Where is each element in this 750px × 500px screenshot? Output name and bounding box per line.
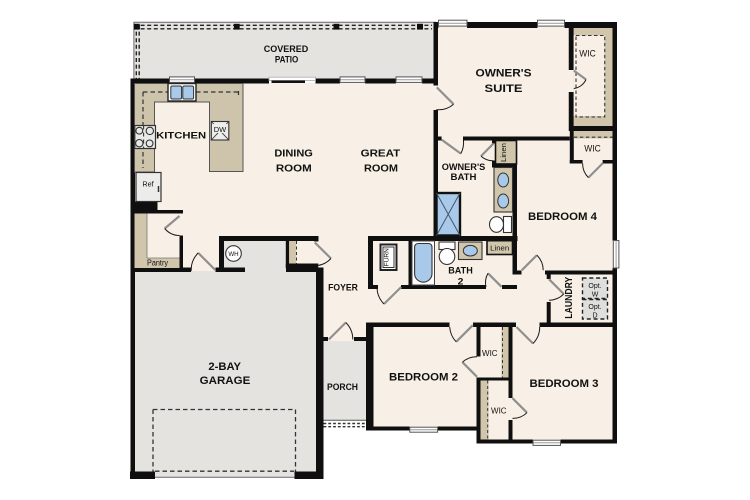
svg-text:KITCHEN: KITCHEN bbox=[156, 130, 206, 141]
svg-text:BATH: BATH bbox=[448, 266, 473, 276]
svg-text:SUITE: SUITE bbox=[485, 83, 523, 95]
svg-text:GREAT: GREAT bbox=[361, 148, 401, 159]
svg-text:Opt.: Opt. bbox=[588, 304, 601, 311]
svg-text:ROOM: ROOM bbox=[276, 164, 312, 175]
svg-text:WIC: WIC bbox=[482, 348, 498, 358]
svg-text:PATIO: PATIO bbox=[275, 55, 299, 65]
svg-text:Ref: Ref bbox=[142, 180, 154, 189]
svg-text:D: D bbox=[592, 313, 597, 320]
svg-text:Pantry: Pantry bbox=[147, 259, 168, 268]
svg-text:Opt.: Opt. bbox=[588, 283, 601, 290]
svg-text:COVERED: COVERED bbox=[264, 44, 309, 54]
svg-text:DW: DW bbox=[214, 125, 227, 134]
svg-text:2: 2 bbox=[458, 276, 464, 286]
svg-text:Linen: Linen bbox=[501, 143, 508, 162]
svg-text:OWNER'S: OWNER'S bbox=[476, 68, 532, 80]
svg-text:Linen: Linen bbox=[490, 246, 509, 253]
svg-text:FOYER: FOYER bbox=[328, 283, 358, 293]
svg-text:BEDROOM 2: BEDROOM 2 bbox=[389, 372, 458, 384]
svg-text:LAUNDRY: LAUNDRY bbox=[564, 277, 575, 319]
svg-text:WIC: WIC bbox=[491, 406, 507, 416]
svg-text:BEDROOM 3: BEDROOM 3 bbox=[530, 378, 599, 390]
svg-text:FURN: FURN bbox=[384, 248, 391, 266]
svg-text:GARAGE: GARAGE bbox=[200, 375, 251, 387]
svg-text:PORCH: PORCH bbox=[327, 382, 358, 392]
svg-text:OWNER'S: OWNER'S bbox=[442, 162, 486, 172]
svg-text:ROOM: ROOM bbox=[364, 164, 398, 175]
svg-text:2-BAY: 2-BAY bbox=[208, 361, 241, 373]
svg-text:WIC: WIC bbox=[584, 144, 601, 154]
svg-text:DINING: DINING bbox=[274, 148, 313, 159]
svg-text:W: W bbox=[592, 292, 599, 299]
svg-text:BATH: BATH bbox=[451, 172, 477, 182]
svg-text:WH: WH bbox=[228, 251, 238, 258]
svg-text:WIC: WIC bbox=[579, 49, 596, 59]
svg-text:BEDROOM 4: BEDROOM 4 bbox=[528, 211, 598, 223]
